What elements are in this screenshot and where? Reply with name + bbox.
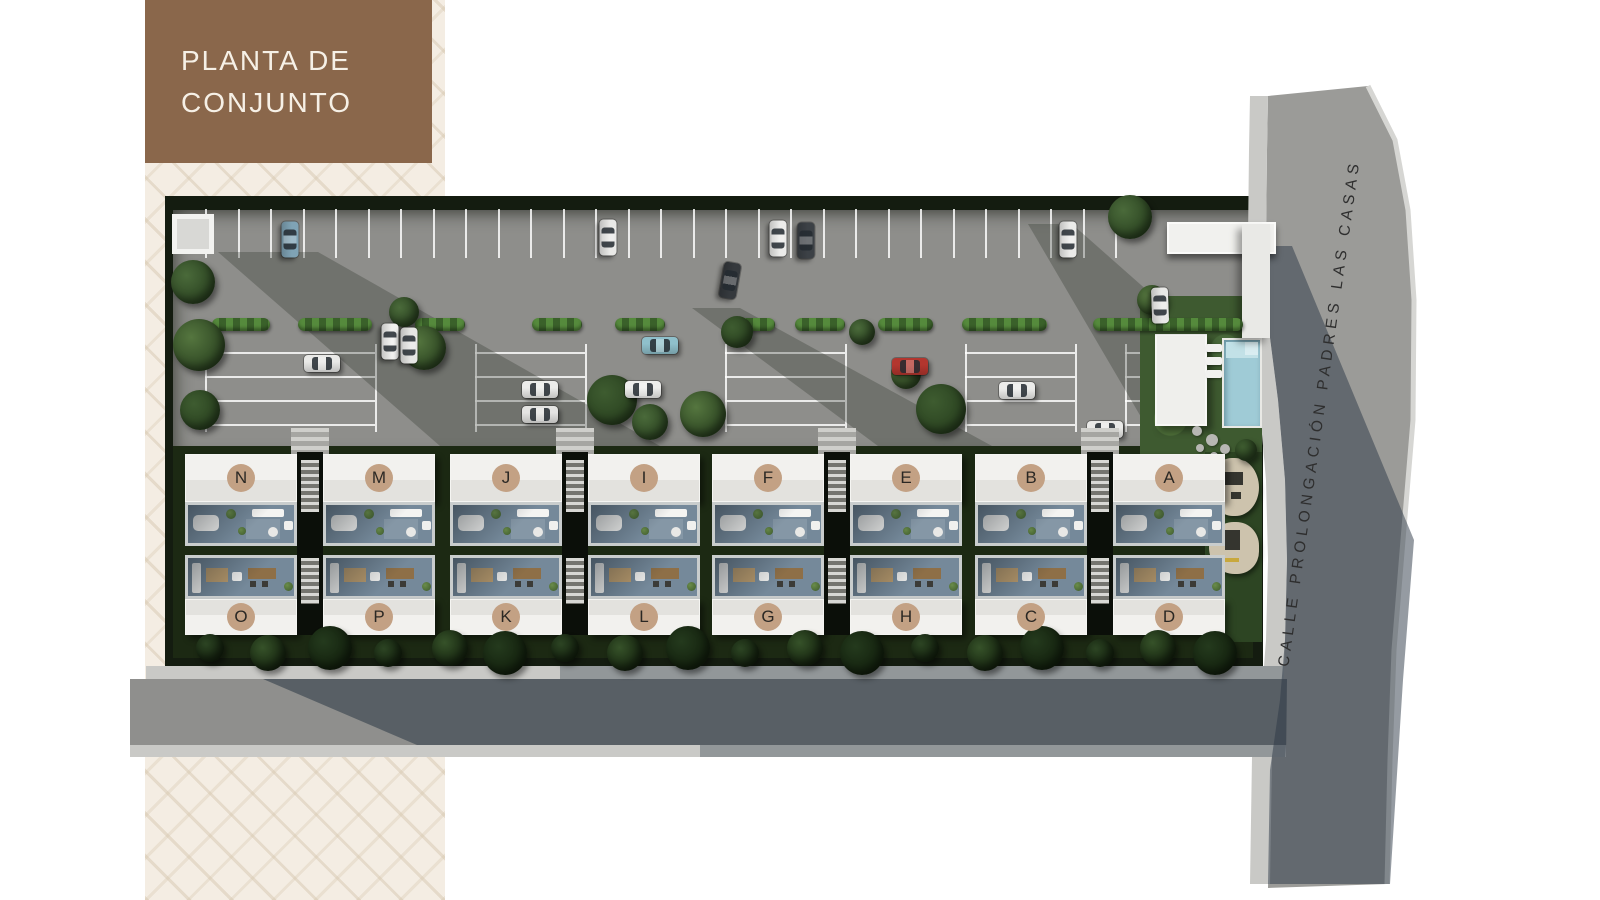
unit-B: B [975,454,1087,546]
unit-badge-C: C [1017,603,1045,631]
unit-terrace [588,502,700,546]
band-tree [1020,626,1064,670]
sofa [390,509,422,517]
site-plan-canvas: PLANTA DE CONJUNTO [0,0,1600,900]
armchair [1074,521,1083,530]
sofa [655,509,687,517]
sofa [857,563,866,593]
rug [733,568,755,582]
plant [629,509,639,519]
chair [1040,581,1046,587]
unit-O: O [185,555,297,635]
chair [665,581,671,587]
unit-badge-E: E [892,464,920,492]
armchair [284,521,293,530]
unit-badge-I: I [630,464,658,492]
sofa [719,563,728,593]
side-table [671,527,681,537]
dining-set [458,515,484,531]
unit-terrace [323,502,435,546]
unit-H: H [850,555,962,635]
dining-table [513,568,541,579]
plant [549,582,558,591]
dining-table [1176,568,1204,579]
chair [1190,581,1196,587]
plant [753,509,763,519]
unit-F: F [712,454,824,546]
unit-roof: K [450,599,562,635]
stairs [1091,558,1109,604]
chair [777,581,783,587]
unit-I: I [588,454,700,546]
unit-roof: C [975,599,1087,635]
unit-L: L [588,555,700,635]
unit-terrace [450,502,562,546]
rug [471,568,493,582]
side-table [268,527,278,537]
unit-terrace [588,555,700,599]
unit-badge-H: H [892,603,920,631]
armchair [1160,572,1170,581]
sofa [982,563,991,593]
chair [927,581,933,587]
sofa [595,563,604,593]
band-tree [731,639,759,667]
rug [996,568,1018,582]
unit-roof: B [975,454,1087,502]
plant [1154,509,1164,519]
rug [1036,519,1070,539]
chair [515,581,521,587]
dining-table [775,568,803,579]
unit-badge-B: B [1017,464,1045,492]
dining-table [248,568,276,579]
dining-set [720,515,746,531]
dining-set [596,515,622,531]
unit-roof: E [850,454,962,502]
unit-roof: O [185,599,297,635]
stair-core [824,452,850,635]
armchair [811,521,820,530]
stairs [828,558,846,604]
band-tree [666,626,710,670]
unit-badge-G: G [754,603,782,631]
rug [649,519,683,539]
dining-table [386,568,414,579]
unit-badge-F: F [754,464,782,492]
sofa [330,563,339,593]
rug [773,519,807,539]
dining-table [913,568,941,579]
armchair [759,572,769,581]
unit-roof: A [1113,454,1225,502]
unit-terrace [975,555,1087,599]
unit-terrace [1113,502,1225,546]
unit-roof: H [850,599,962,635]
plant [376,527,384,535]
band-tree [432,630,468,666]
unit-roof: N [185,454,297,502]
unit-terrace [850,555,962,599]
side-table [533,527,543,537]
side-table [406,527,416,537]
plant [238,527,246,535]
plant [226,509,236,519]
rug [511,519,545,539]
unit-badge-J: J [492,464,520,492]
stairs [1091,460,1109,512]
armchair [949,521,958,530]
band-tree [607,635,643,671]
plant [1212,582,1221,591]
unit-terrace [712,502,824,546]
band-tree [1086,639,1114,667]
plant [1028,527,1036,535]
band-tree [911,634,939,662]
chair [1178,581,1184,587]
unit-badge-K: K [492,603,520,631]
side-table [1058,527,1068,537]
plant [1016,509,1026,519]
unit-badge-N: N [227,464,255,492]
unit-A: A [1113,454,1225,546]
sofa [1180,509,1212,517]
band-tree [1140,630,1176,666]
unit-terrace [712,555,824,599]
housing-block-3: FEGH [712,452,962,635]
band-tree [196,634,224,662]
armchair [370,572,380,581]
plant [491,509,501,519]
stairs [566,558,584,604]
plant [641,527,649,535]
band-tree [308,626,352,670]
chair [400,581,406,587]
plant [687,582,696,591]
stairs [566,460,584,512]
armchair [1022,572,1032,581]
plant [949,582,958,591]
rug [246,519,280,539]
rug [1134,568,1156,582]
dining-set [331,515,357,531]
plant [891,509,901,519]
unit-J: J [450,454,562,546]
sofa [1042,509,1074,517]
unit-roof: D [1113,599,1225,635]
unit-roof: F [712,454,824,502]
chair [915,581,921,587]
unit-E: E [850,454,962,546]
unit-K: K [450,555,562,635]
rug [871,568,893,582]
chair [388,581,394,587]
chair [250,581,256,587]
unit-terrace [323,555,435,599]
side-table [795,527,805,537]
stairs [301,558,319,604]
unit-terrace [850,502,962,546]
stair-core [562,452,588,635]
unit-N: N [185,454,297,546]
plant [364,509,374,519]
unit-badge-O: O [227,603,255,631]
unit-D: D [1113,555,1225,635]
armchair [635,572,645,581]
rug [344,568,366,582]
armchair [1212,521,1221,530]
dining-table [651,568,679,579]
armchair [549,521,558,530]
band-tree [483,631,527,675]
unit-terrace [450,555,562,599]
unit-terrace [185,502,297,546]
plant [422,582,431,591]
sofa [192,563,201,593]
stairs [828,460,846,512]
plant [903,527,911,535]
rug [609,568,631,582]
chair [653,581,659,587]
rug [1174,519,1208,539]
unit-badge-L: L [630,603,658,631]
armchair [897,572,907,581]
armchair [497,572,507,581]
unit-M: M [323,454,435,546]
dining-set [983,515,1009,531]
unit-badge-P: P [365,603,393,631]
chair [1052,581,1058,587]
housing-block-1: NMOP [185,452,435,635]
unit-roof: I [588,454,700,502]
unit-P: P [323,555,435,635]
sofa [779,509,811,517]
band-tree [840,631,884,675]
plant [1166,527,1174,535]
unit-G: G [712,555,824,635]
dining-set [1121,515,1147,531]
chair [789,581,795,587]
sofa [917,509,949,517]
unit-terrace [185,555,297,599]
band-tree [250,635,286,671]
rug [911,519,945,539]
unit-C: C [975,555,1087,635]
sofa [457,563,466,593]
band-tree [374,639,402,667]
sofa [1120,563,1129,593]
plant [811,582,820,591]
unit-roof: M [323,454,435,502]
armchair [232,572,242,581]
band-tree [967,635,1003,671]
plant [1074,582,1083,591]
side-table [1196,527,1206,537]
stairs [301,460,319,512]
dining-set [858,515,884,531]
plant [503,527,511,535]
chair [262,581,268,587]
plant [765,527,773,535]
sofa [252,509,284,517]
band-tree [551,634,579,662]
plant [284,582,293,591]
rug [206,568,228,582]
unit-terrace [975,502,1087,546]
armchair [687,521,696,530]
stair-core [297,452,323,635]
unit-badge-M: M [365,464,393,492]
dining-set [193,515,219,531]
sofa [517,509,549,517]
rug [384,519,418,539]
side-table [933,527,943,537]
housing-block-2: JIKL [450,452,700,635]
chair [527,581,533,587]
unit-badge-A: A [1155,464,1183,492]
housing-block-4: BACD [975,452,1225,635]
unit-roof: J [450,454,562,502]
unit-badge-D: D [1155,603,1183,631]
band-tree [1193,631,1237,675]
unit-terrace [1113,555,1225,599]
armchair [422,521,431,530]
dining-table [1038,568,1066,579]
stair-core [1087,452,1113,635]
band-tree [787,630,823,666]
